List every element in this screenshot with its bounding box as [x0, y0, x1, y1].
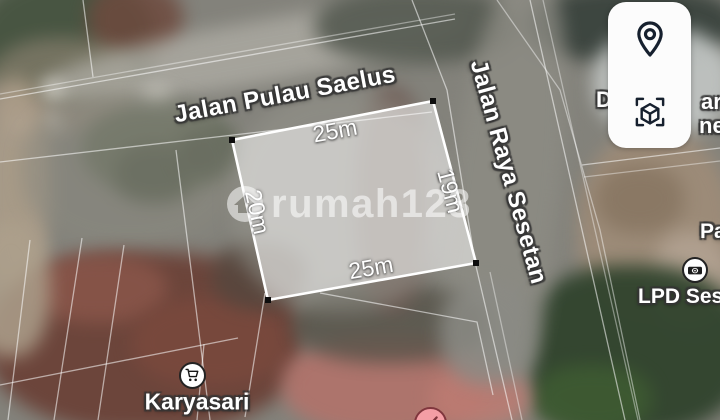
- poi-karyasari-label[interactable]: Karyasari: [145, 389, 250, 416]
- poi-lpd-label[interactable]: LPD Sese: [638, 285, 720, 309]
- poi-pa-label[interactable]: Pa: [700, 220, 720, 244]
- map-control-panel: [608, 2, 691, 148]
- shopping-cart-icon: [185, 368, 200, 383]
- poi-karyasari-marker[interactable]: [179, 362, 206, 389]
- occluded-label-right-bottom: ne: [699, 113, 720, 139]
- location-pin-icon: [630, 19, 670, 59]
- map-viewport[interactable]: 25m 19m 25m 20m Jalan Pulau Saelus Jalan…: [0, 0, 720, 420]
- poi-lpd-marker[interactable]: [682, 257, 708, 283]
- occluded-label-right-top: art: [701, 89, 720, 115]
- view-3d-button[interactable]: [608, 75, 691, 148]
- pink-marker-glyph: [418, 411, 444, 420]
- rumah123-logo-icon: [226, 185, 264, 223]
- location-pin-button[interactable]: [608, 2, 691, 75]
- watermark-text: rumah123: [271, 184, 472, 224]
- 3d-cube-icon: [629, 91, 671, 133]
- watermark: rumah123: [226, 184, 472, 224]
- banknote-icon: [687, 263, 703, 278]
